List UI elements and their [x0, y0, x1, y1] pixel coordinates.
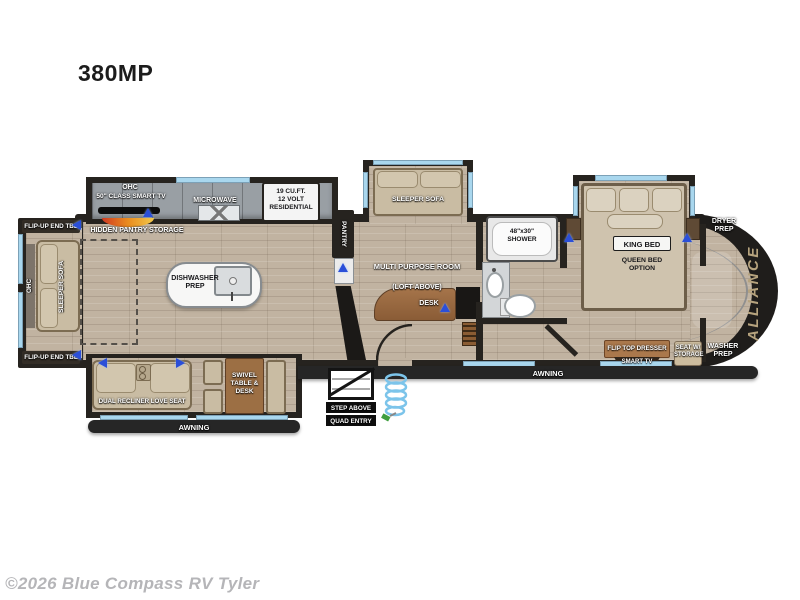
model-title: 380MP — [78, 60, 153, 87]
step-above-label: STEP ABOVE — [326, 405, 376, 413]
dinette-bench — [203, 360, 223, 385]
dinette-bench — [266, 360, 286, 414]
living-awning-label: AWNING — [150, 423, 238, 432]
kitchen-ohc-label: OHC — [100, 184, 160, 192]
bedroom-tv-label: SMART TV — [612, 359, 662, 366]
bath-wall-bottom — [483, 318, 567, 324]
bed-pillow — [586, 188, 616, 212]
front-cap-highlight — [692, 252, 732, 328]
slide-travel-outline — [80, 239, 138, 345]
brand-name: ALLIANCE — [744, 236, 764, 350]
bath-sink — [486, 272, 504, 298]
bed-bolster — [607, 214, 663, 229]
rear-window-top — [18, 234, 23, 284]
bath-faucet — [492, 268, 496, 272]
cup-holder — [139, 366, 146, 373]
speaker-icon — [72, 350, 81, 360]
pantry-label: PANTRY — [332, 214, 354, 254]
swivel-table-label: SWIVEL TABLE & DESK — [225, 372, 264, 395]
speaker-icon — [143, 208, 153, 217]
seat-with-storage-label: SEAT W/ STORAGE — [674, 345, 702, 359]
shower-label: 48"x30" SHOWER — [496, 228, 548, 244]
quad-entry-label: QUAD ENTRY — [326, 418, 376, 426]
speaker-icon — [72, 220, 81, 230]
speaker-icon — [338, 263, 348, 272]
mpr-window-top — [373, 160, 463, 165]
dealer-watermark: ©2026 Blue Compass RV Tyler — [5, 574, 259, 594]
bed-pillow — [619, 188, 649, 212]
rear-window-bottom — [18, 292, 23, 348]
mpr-loft-label: (LOFT ABOVE) — [362, 284, 472, 292]
utility-hose — [380, 372, 410, 424]
refrigerator-label: 19 CU.FT. 12 VOLT RESIDENTIAL — [262, 188, 320, 211]
flip-top-dresser-label: FLIP TOP DRESSER — [604, 345, 670, 352]
mpr-window-right — [468, 172, 473, 208]
speaker-icon — [564, 233, 574, 242]
mpr-sofa-label: SLEEPER SOFA — [373, 196, 463, 204]
mpr-sofa-cushion — [377, 171, 418, 188]
mpr-sofa-cushion — [420, 171, 461, 188]
dinette-bench — [203, 389, 223, 414]
range — [198, 205, 240, 221]
bed-pillow — [652, 188, 682, 212]
microwave-label: MICROWAVE — [180, 197, 250, 205]
washer-prep-label: WASHER PREP — [700, 343, 746, 360]
entry-door-swing — [376, 324, 414, 362]
rear-ohc-label: OHC — [25, 256, 35, 316]
mpr-room-label: MULTI PURPOSE ROOM — [352, 262, 482, 271]
king-bed-label: KING BED — [613, 240, 671, 249]
main-awning-label: AWNING — [508, 369, 588, 378]
toilet — [504, 294, 536, 318]
speaker-icon — [176, 358, 185, 368]
queen-option-label: QUEEN BED OPTION — [612, 257, 672, 273]
sink-drain — [229, 277, 237, 285]
speaker-icon — [98, 358, 107, 368]
smart-tv-50-label: 50" CLASS SMART TV — [90, 193, 172, 201]
dishwasher-prep-label: DISHWASHER PREP — [170, 275, 220, 292]
loveseat-label: DUAL RECLINER LOVE SEAT — [92, 398, 192, 405]
cup-holder — [139, 373, 146, 380]
dryer-prep-label: DRYER PREP — [702, 218, 746, 235]
mpr-window-left — [363, 172, 368, 208]
rear-sofa-label: SLEEPER SOFA — [56, 248, 68, 326]
speaker-icon — [440, 303, 450, 312]
sink-faucet — [231, 292, 233, 301]
hidden-pantry-label: HIDDEN PANTRY STORAGE — [82, 227, 192, 235]
speaker-icon — [682, 233, 692, 242]
bed-window-left — [573, 186, 578, 216]
floorplan-image: 380MP ALLIANCE DRYER PREP WASHER PREP OH… — [0, 0, 800, 600]
bed-window-right — [690, 186, 695, 216]
